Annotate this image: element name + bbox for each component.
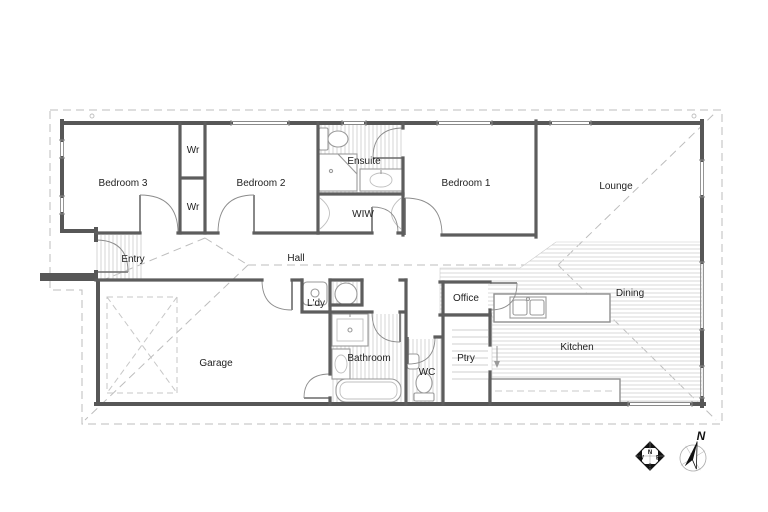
room-label-laundry: L'dy — [307, 298, 325, 309]
floor-plan-canvas: Bedroom 3 Wr Wr Bedroom 2 Ensuite WIW Be… — [0, 0, 768, 512]
room-label-wr-top: Wr — [187, 145, 200, 156]
window-bedroom3-left-1 — [59, 140, 65, 158]
room-label-pantry: Ptry — [457, 353, 475, 364]
ensuite-vanity-icon — [360, 169, 403, 191]
hot-water-cylinder-icon — [335, 283, 357, 305]
bathroom-shower-icon — [332, 312, 368, 346]
room-label-wiw: WIW — [352, 209, 374, 220]
north-arrow-icon: N — [677, 429, 709, 474]
room-label-kitchen: Kitchen — [560, 342, 593, 353]
room-label-garage: Garage — [199, 358, 233, 369]
wiw-door — [372, 207, 398, 233]
room-label-bathroom: Bathroom — [347, 353, 390, 364]
window-bedroom2-top — [231, 120, 289, 126]
room-label-wr-bottom: Wr — [187, 202, 200, 213]
compass-rose-icon: N W E S — [636, 442, 664, 470]
garage-rear-door — [304, 374, 330, 398]
window-bedroom3-left-2 — [59, 196, 65, 214]
room-label-entry: Entry — [121, 254, 144, 265]
window-lounge-right — [699, 160, 705, 197]
compass-rose-s: S — [648, 464, 652, 470]
garage-hall-door — [262, 280, 292, 310]
room-label-hall: Hall — [287, 253, 304, 264]
kitchen-bench — [489, 379, 620, 404]
room-label-ensuite: Ensuite — [347, 156, 381, 167]
compass-rose-w: W — [638, 456, 644, 462]
room-label-bedroom-1: Bedroom 1 — [442, 178, 491, 189]
room-label-lounge: Lounge — [599, 181, 633, 192]
bedroom3-door — [140, 195, 178, 233]
bedroom2-door — [218, 195, 254, 233]
window-bedroom1-top — [437, 120, 492, 126]
window-lounge-top — [550, 120, 591, 126]
compass-rose-n: N — [648, 450, 652, 456]
room-label-office: Office — [453, 293, 479, 304]
garage-dashed-square — [107, 297, 177, 393]
room-label-wc: WC — [419, 367, 436, 378]
room-label-dining: Dining — [616, 288, 644, 299]
bedroom1-door — [405, 198, 442, 235]
floor-plan-page: Bedroom 3 Wr Wr Bedroom 2 Ensuite WIW Be… — [0, 0, 768, 512]
room-label-bedroom-3: Bedroom 3 — [99, 178, 148, 189]
bathtub-icon — [336, 379, 401, 402]
entry-fin-wall — [40, 273, 98, 281]
kitchen-island — [494, 294, 610, 322]
room-label-bedroom-2: Bedroom 2 — [237, 178, 286, 189]
north-arrow-label: N — [697, 429, 706, 443]
compass-rose-e: E — [656, 456, 660, 462]
